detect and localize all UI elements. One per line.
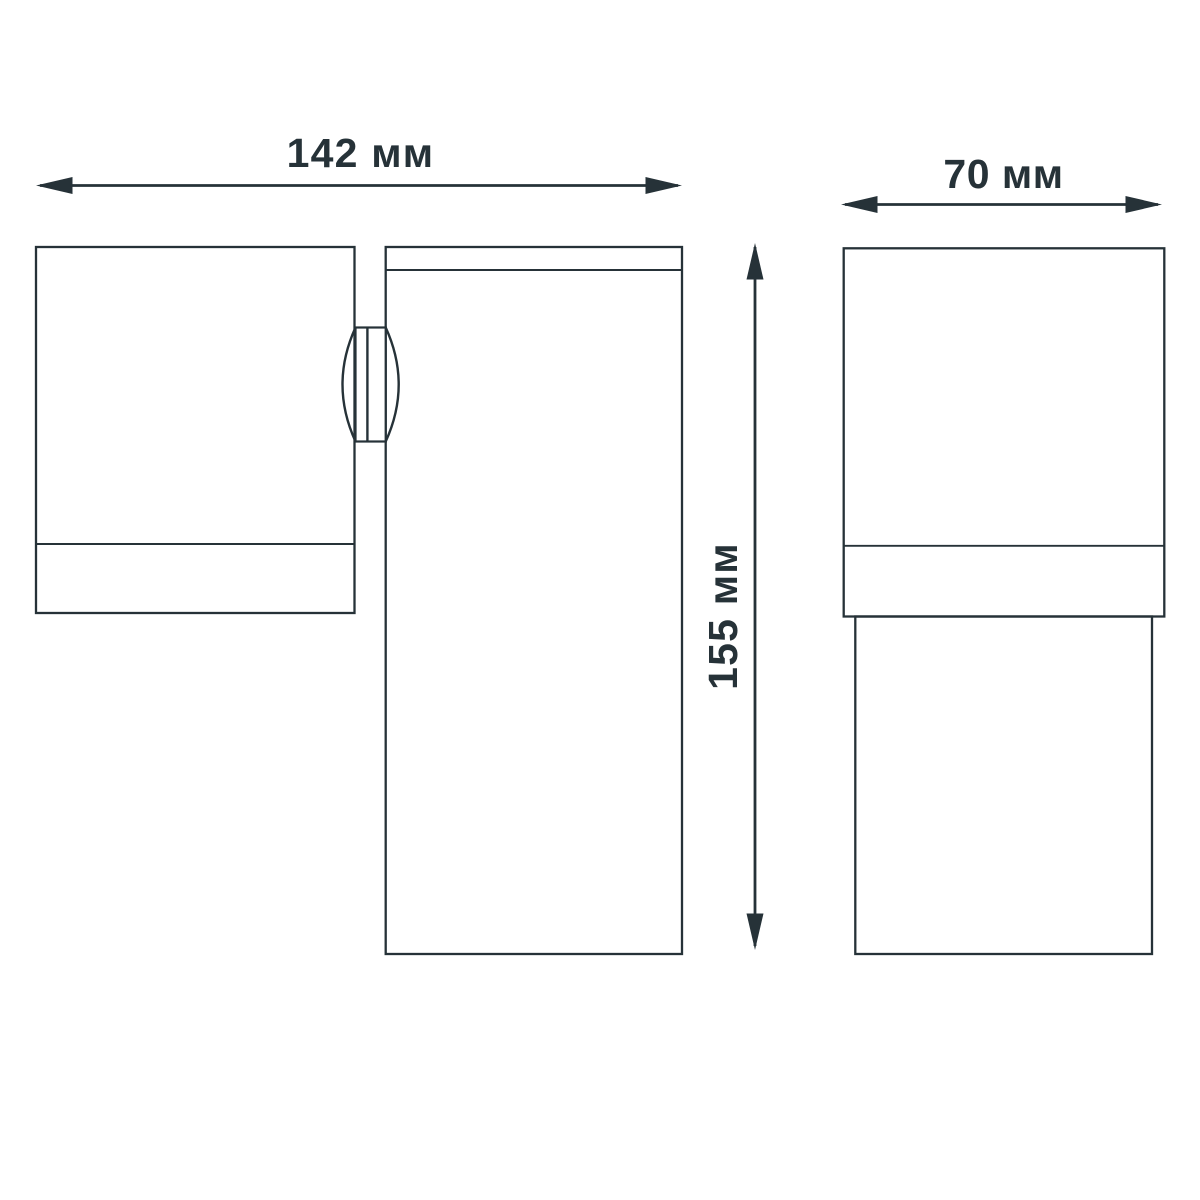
svg-text:155 мм: 155 мм [700, 542, 746, 690]
svg-text:70 мм: 70 мм [943, 151, 1063, 197]
svg-text:142 мм: 142 мм [287, 130, 435, 176]
